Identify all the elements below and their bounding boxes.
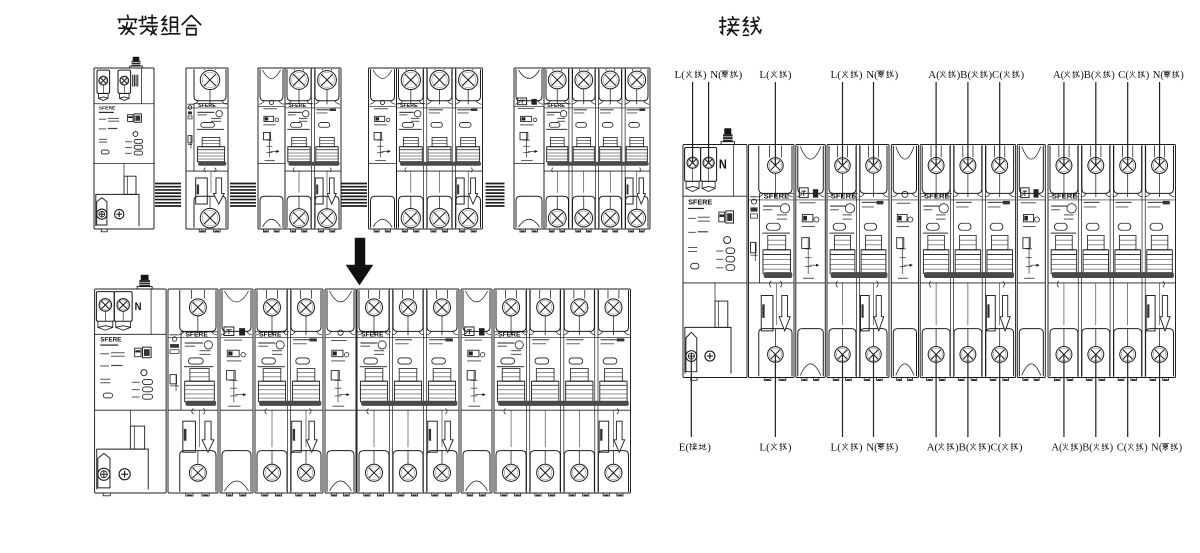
svg-text:): ) [895, 442, 899, 454]
svg-text:B(: B( [960, 69, 971, 81]
svg-text:A(: A( [1053, 70, 1065, 81]
svg-text:): ) [1020, 69, 1024, 81]
svg-text:N: N [719, 156, 727, 171]
svg-text:L(: L( [675, 69, 686, 81]
svg-text:B(: B( [959, 442, 970, 454]
svg-text:L(: L( [759, 442, 770, 454]
svg-text:A(: A( [928, 69, 940, 81]
svg-text:): ) [1180, 70, 1184, 81]
svg-text:C(: C( [1117, 443, 1128, 454]
svg-text:N(: N( [1151, 443, 1163, 454]
svg-text:B(: B( [1082, 443, 1093, 454]
svg-text:A(: A( [1051, 443, 1063, 454]
svg-text:): ) [859, 442, 863, 454]
svg-text:N(: N( [1153, 70, 1165, 81]
svg-text:L(: L( [759, 69, 770, 81]
svg-text:): ) [1111, 70, 1115, 81]
svg-text:SFERE: SFERE [100, 337, 121, 344]
svg-text:): ) [739, 69, 743, 81]
svg-text:): ) [1019, 442, 1023, 454]
svg-text:C(: C( [1118, 70, 1129, 81]
svg-text:): ) [703, 69, 707, 81]
svg-text:): ) [788, 69, 792, 81]
svg-text:A(: A( [927, 442, 939, 454]
svg-text:E(: E( [679, 442, 690, 454]
svg-text:): ) [1110, 443, 1114, 454]
svg-text:C(: C( [992, 69, 1003, 81]
svg-text:): ) [707, 442, 711, 454]
svg-text:): ) [1179, 443, 1183, 454]
svg-text:C(: C( [990, 442, 1001, 454]
svg-text:B(: B( [1084, 70, 1095, 81]
svg-text:L(: L( [831, 69, 842, 81]
svg-text:): ) [859, 69, 863, 81]
svg-text:N(: N( [866, 69, 878, 81]
svg-text:SFERE: SFERE [688, 198, 712, 207]
svg-text:N(: N( [710, 69, 722, 81]
svg-text:): ) [1144, 443, 1148, 454]
svg-text:): ) [895, 69, 899, 81]
svg-text:SFERE: SFERE [831, 192, 857, 201]
svg-text:SFERE: SFERE [99, 106, 116, 112]
svg-text:N: N [135, 301, 142, 313]
svg-text:SFERE: SFERE [1052, 192, 1078, 201]
svg-text:): ) [1146, 70, 1150, 81]
svg-text:N(: N( [866, 442, 878, 454]
svg-text:SFERE: SFERE [924, 192, 950, 201]
svg-text:L(: L( [831, 442, 842, 454]
svg-text:): ) [788, 442, 792, 454]
